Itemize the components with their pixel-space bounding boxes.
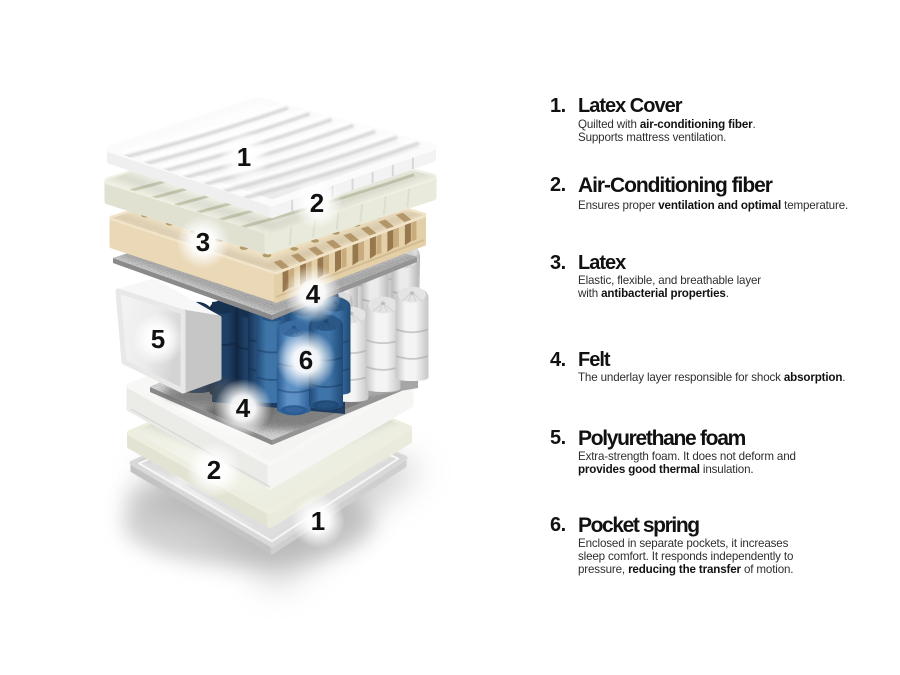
- svg-text:2: 2: [310, 188, 324, 218]
- svg-text:4: 4: [306, 279, 321, 309]
- svg-text:5: 5: [151, 324, 165, 354]
- svg-text:6: 6: [299, 345, 313, 375]
- svg-text:2: 2: [207, 455, 221, 485]
- svg-text:1: 1: [237, 142, 251, 172]
- svg-text:1: 1: [311, 506, 325, 536]
- svg-text:3: 3: [196, 227, 210, 257]
- svg-text:4: 4: [236, 393, 251, 423]
